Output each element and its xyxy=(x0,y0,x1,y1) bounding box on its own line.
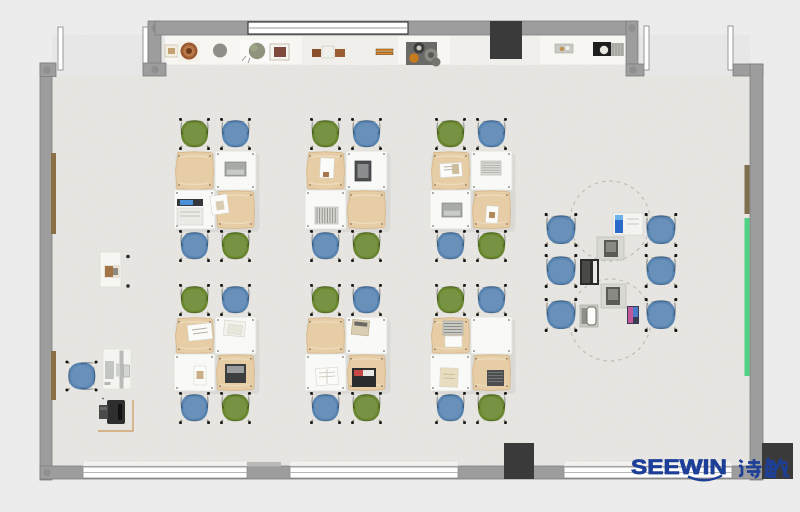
svg-text:SEEWIN: SEEWIN xyxy=(631,455,727,479)
